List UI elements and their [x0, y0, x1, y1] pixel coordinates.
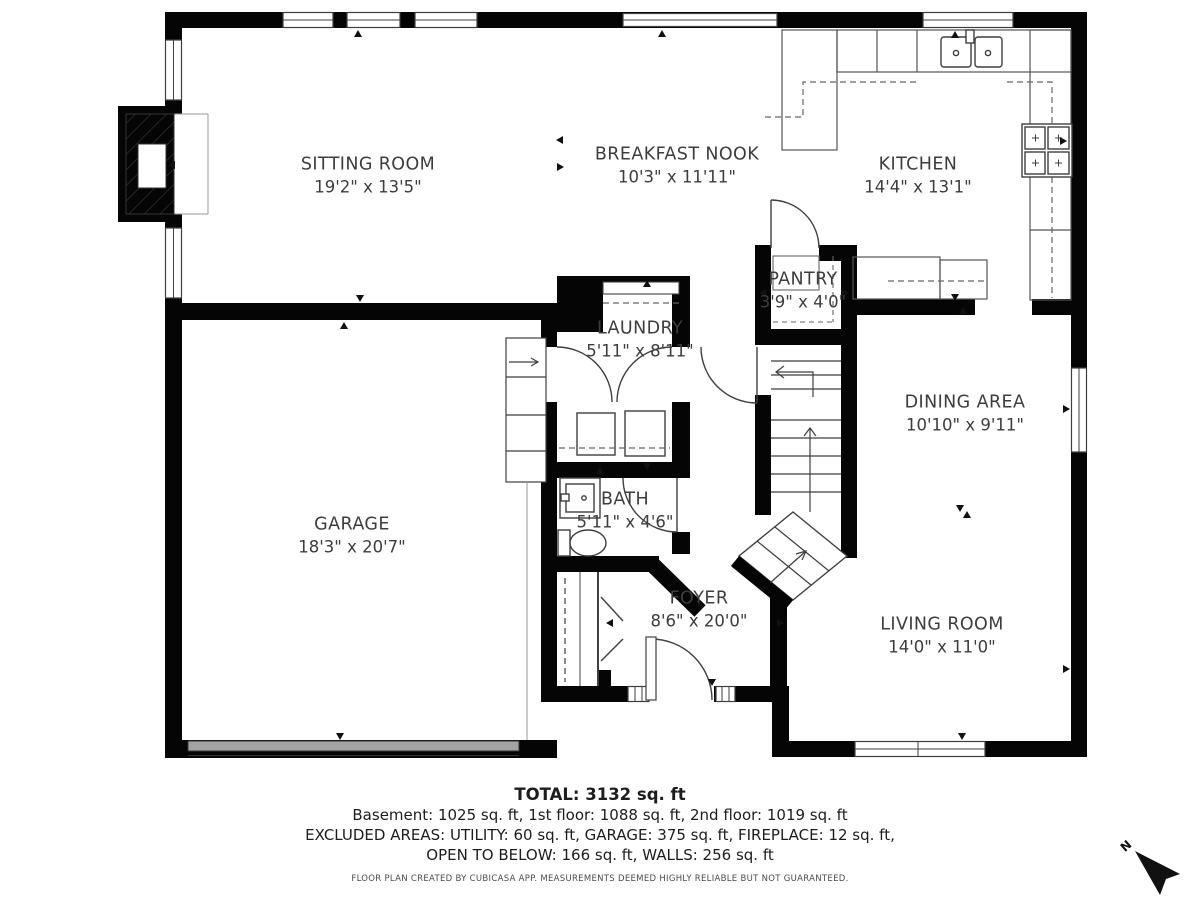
room-dims: 5'11" x 4'6" — [577, 512, 674, 533]
excluded-areas-line1: EXCLUDED AREAS: UTILITY: 60 sq. ft, GARA… — [0, 825, 1200, 845]
floor-areas: Basement: 1025 sq. ft, 1st floor: 1088 s… — [0, 805, 1200, 825]
room-label-laundry: LAUNDRY 5'11" x 8'11" — [586, 318, 694, 362]
room-label-pantry: PANTRY 3'9" x 4'0" — [760, 269, 847, 313]
floorplan-drawing: N — [0, 0, 1200, 900]
room-dims: 10'3" x 11'11" — [595, 167, 759, 188]
closet-bifold-doors — [601, 597, 623, 661]
room-name: FOYER — [651, 588, 748, 610]
room-label-garage: GARAGE 18'3" x 20'7" — [298, 514, 406, 558]
room-label-foyer: FOYER 8'6" x 20'0" — [651, 588, 748, 632]
disclaimer: FLOOR PLAN CREATED BY CUBICASA APP. MEAS… — [0, 874, 1200, 884]
fireplace — [118, 106, 208, 222]
room-label-living-room: LIVING ROOM 14'0" x 11'0" — [880, 614, 1003, 658]
toilet — [558, 530, 606, 556]
room-label-dining-area: DINING AREA 10'10" x 9'11" — [905, 392, 1026, 436]
room-dims: 14'0" x 11'0" — [880, 637, 1003, 658]
room-dims: 8'6" x 20'0" — [651, 611, 748, 632]
stairs-main-flight — [771, 420, 841, 512]
area-summary: TOTAL: 3132 sq. ft Basement: 1025 sq. ft… — [0, 785, 1200, 884]
garage-steps — [506, 338, 546, 740]
foyer-closet — [565, 572, 598, 686]
pantry-door — [771, 200, 819, 248]
stove — [1022, 124, 1072, 177]
floorplan-canvas: N SITTING ROOM 19'2" x 13'5" BREAKFAST N… — [0, 0, 1200, 900]
room-dims: 19'2" x 13'5" — [301, 177, 435, 198]
room-name: GARAGE — [298, 514, 406, 536]
excluded-areas-line2: OPEN TO BELOW: 166 sq. ft, WALLS: 256 sq… — [0, 845, 1200, 865]
total-area: TOTAL: 3132 sq. ft — [0, 785, 1200, 805]
room-name: BREAKFAST NOOK — [595, 144, 759, 166]
room-name: BATH — [577, 489, 674, 511]
room-dims: 14'4" x 13'1" — [864, 177, 972, 198]
room-dims: 10'10" x 9'11" — [905, 415, 1026, 436]
stairs-basement-flight — [771, 361, 841, 397]
room-name: PANTRY — [760, 269, 847, 291]
room-dims: 5'11" x 8'11" — [586, 341, 694, 362]
room-name: DINING AREA — [905, 392, 1026, 414]
room-name: LAUNDRY — [586, 318, 694, 340]
room-dims: 18'3" x 20'7" — [298, 537, 406, 558]
room-label-breakfast-nook: BREAKFAST NOOK 10'3" x 11'11" — [595, 144, 759, 188]
room-label-bath: BATH 5'11" x 4'6" — [577, 489, 674, 533]
room-name: KITCHEN — [864, 154, 972, 176]
room-label-sitting-room: SITTING ROOM 19'2" x 13'5" — [301, 154, 435, 198]
room-name: LIVING ROOM — [880, 614, 1003, 636]
stair-hall-door — [701, 347, 757, 403]
kitchen-sink — [941, 30, 1002, 67]
room-dims: 3'9" x 4'0" — [760, 292, 847, 313]
room-name: SITTING ROOM — [301, 154, 435, 176]
room-label-kitchen: KITCHEN 14'4" x 13'1" — [864, 154, 972, 198]
stairs-winder — [735, 512, 847, 605]
